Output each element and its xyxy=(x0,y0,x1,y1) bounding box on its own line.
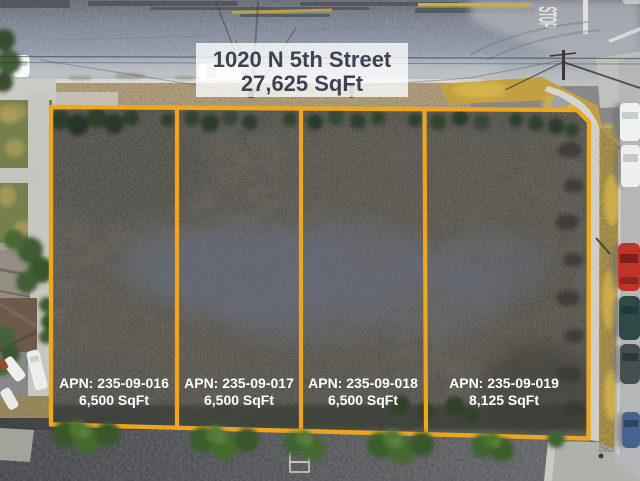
svg-text:6,500 SqFt: 6,500 SqFt xyxy=(328,392,398,408)
svg-text:6,500 SqFt: 6,500 SqFt xyxy=(204,392,274,408)
svg-text:APN: 235-09-018: APN: 235-09-018 xyxy=(308,375,418,391)
svg-text:APN: 235-09-017: APN: 235-09-017 xyxy=(184,375,294,391)
svg-text:6,500 SqFt: 6,500 SqFt xyxy=(79,392,149,408)
svg-text:1020 N 5th Street: 1020 N 5th Street xyxy=(213,47,392,72)
svg-text:8,125 SqFt: 8,125 SqFt xyxy=(469,392,539,408)
svg-text:APN: 235-09-019: APN: 235-09-019 xyxy=(449,375,559,391)
svg-text:APN: 235-09-016: APN: 235-09-016 xyxy=(59,375,169,391)
svg-text:27,625 SqFt: 27,625 SqFt xyxy=(241,71,364,96)
